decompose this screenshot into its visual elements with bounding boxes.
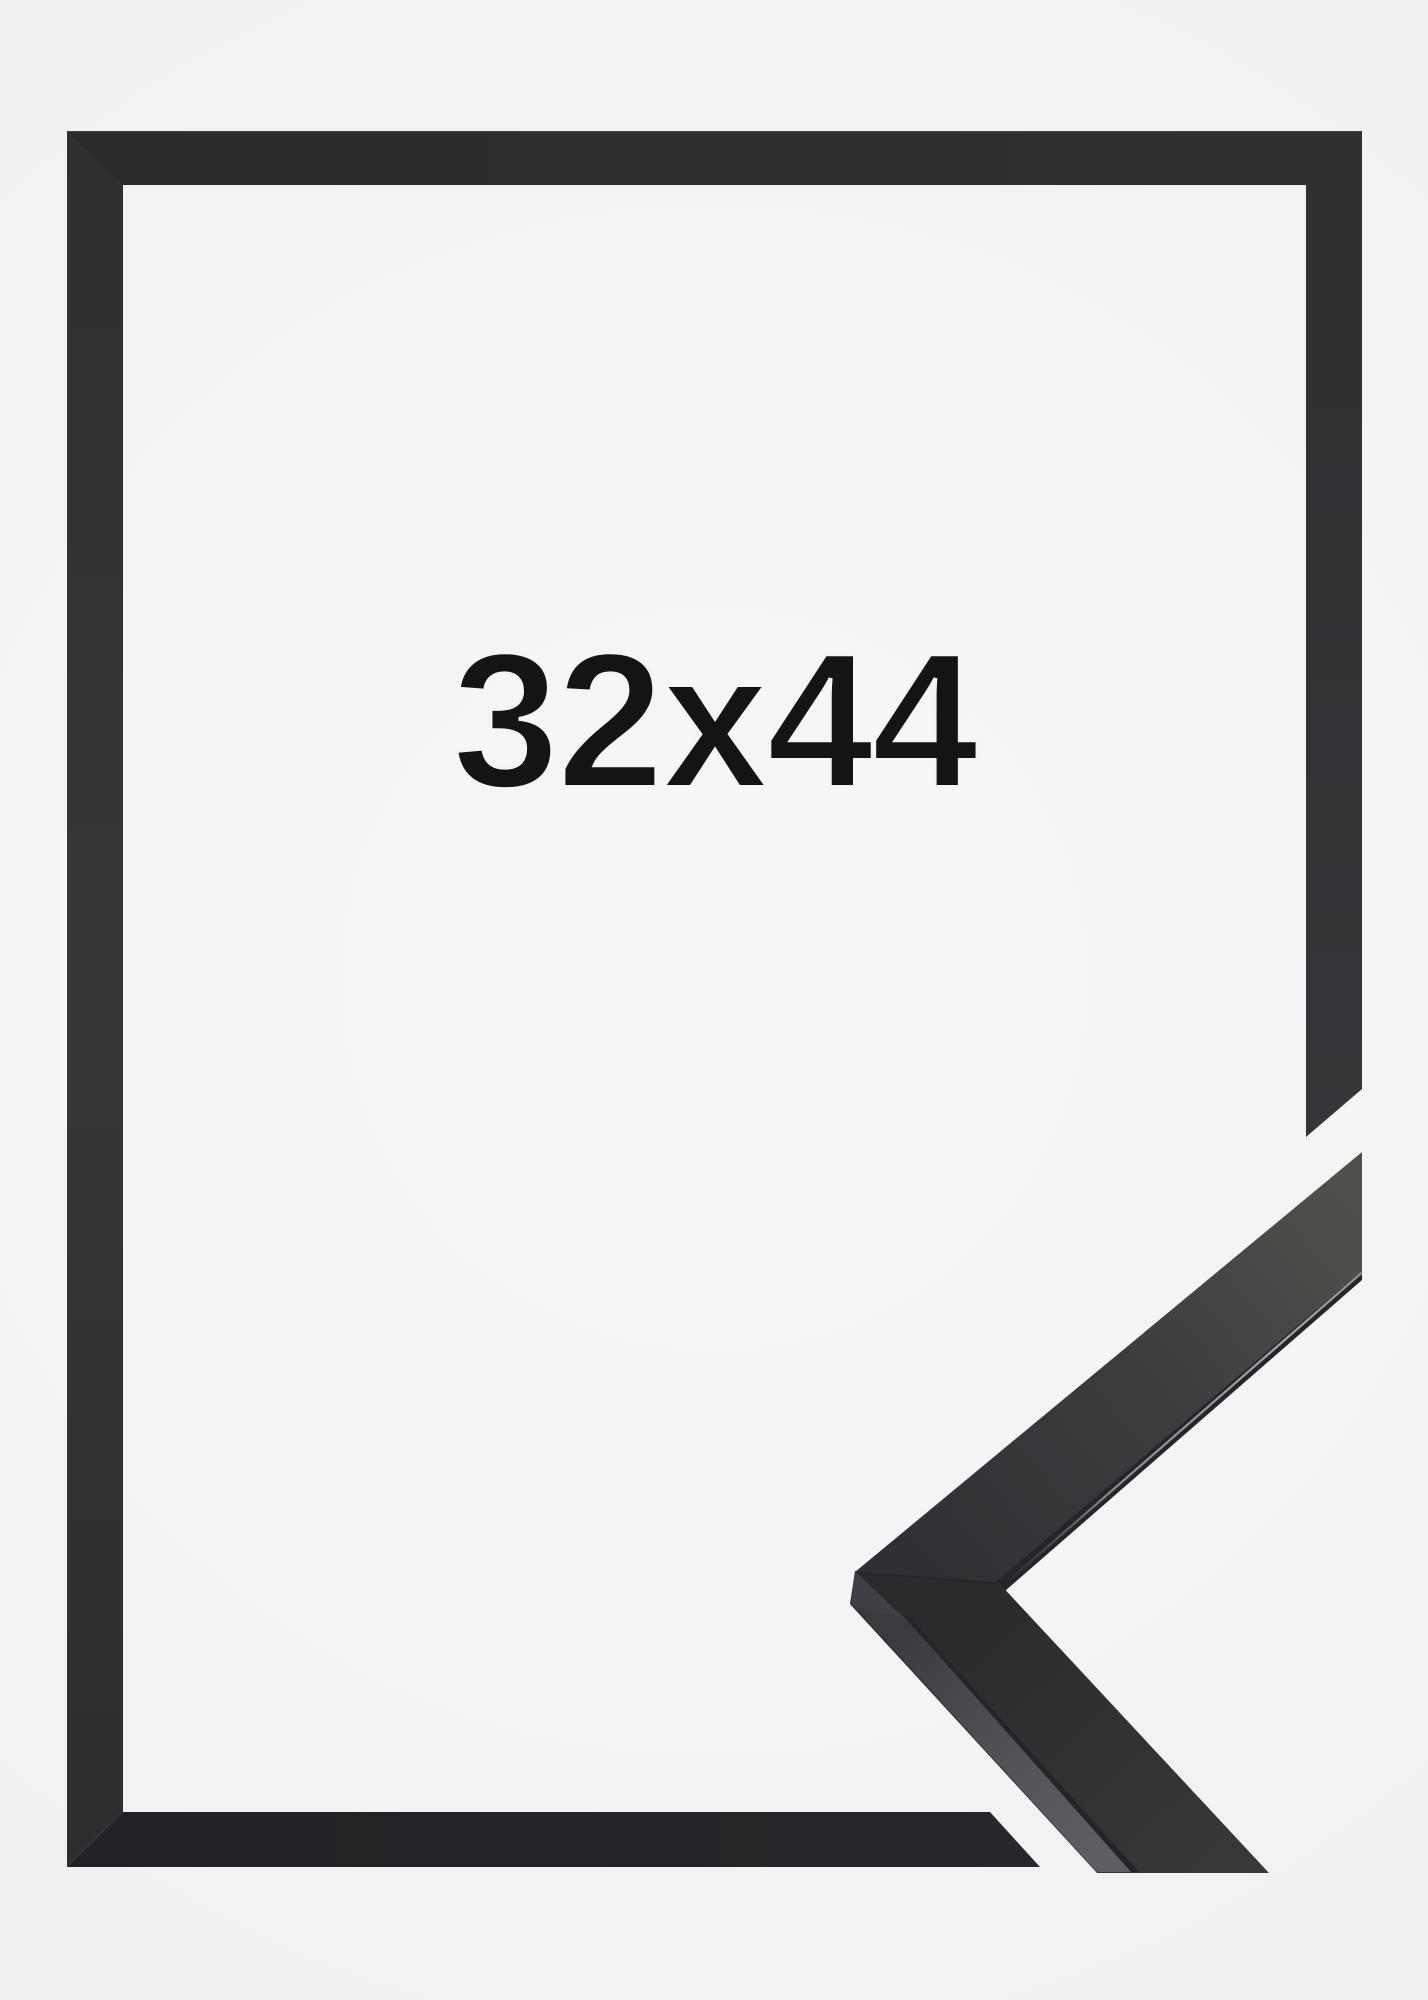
svg-text:32x44: 32x44	[452, 612, 978, 828]
